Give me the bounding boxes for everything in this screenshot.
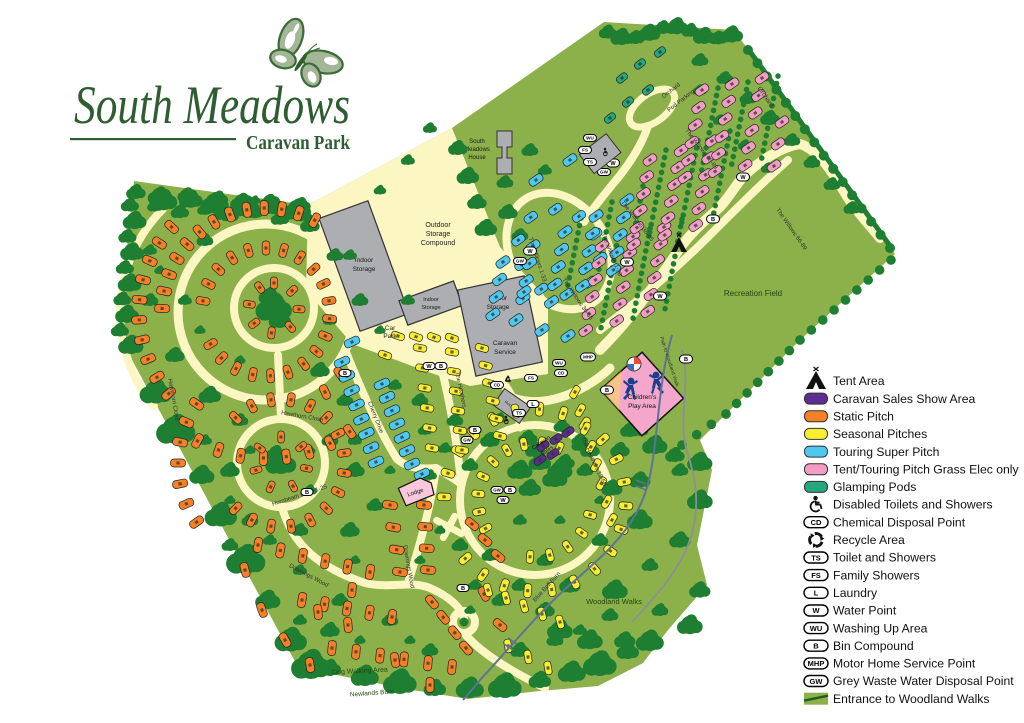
svg-text:B: B bbox=[439, 364, 443, 370]
svg-text:Tent/Touring Pitch Grass Elec: Tent/Touring Pitch Grass Elec only bbox=[833, 462, 1020, 476]
svg-text:B: B bbox=[508, 488, 512, 494]
svg-text:Static Pitch: Static Pitch bbox=[833, 410, 894, 424]
svg-text:W: W bbox=[610, 161, 616, 167]
svg-text:Toilet and Showers: Toilet and Showers bbox=[833, 551, 936, 565]
svg-text:Laundry: Laundry bbox=[833, 586, 878, 600]
svg-text:Children's: Children's bbox=[628, 394, 657, 401]
svg-text:W: W bbox=[527, 249, 533, 255]
svg-text:B: B bbox=[605, 388, 609, 394]
svg-text:Tent Area: Tent Area bbox=[833, 374, 885, 388]
svg-text:B: B bbox=[684, 357, 688, 363]
svg-text:Family Showers: Family Showers bbox=[833, 568, 920, 582]
svg-text:Meadows: Meadows bbox=[464, 147, 490, 153]
svg-text:FS: FS bbox=[528, 376, 534, 381]
svg-text:Recycle Area: Recycle Area bbox=[833, 533, 905, 547]
svg-text:CD: CD bbox=[494, 383, 501, 388]
svg-text:Compound: Compound bbox=[421, 240, 455, 247]
svg-text:Glamping Pods: Glamping Pods bbox=[833, 480, 916, 494]
svg-text:GW: GW bbox=[516, 259, 525, 264]
svg-text:MHP: MHP bbox=[808, 659, 825, 668]
svg-text:WU: WU bbox=[555, 361, 563, 366]
svg-text:CD: CD bbox=[811, 518, 822, 527]
svg-text:Washing Up Area: Washing Up Area bbox=[833, 621, 928, 635]
svg-text:Storage: Storage bbox=[421, 305, 440, 311]
svg-text:B: B bbox=[343, 371, 347, 377]
svg-text:Storage: Storage bbox=[353, 266, 376, 273]
svg-text:B: B bbox=[473, 428, 477, 434]
svg-text:GW: GW bbox=[810, 677, 824, 686]
svg-text:B: B bbox=[305, 490, 309, 496]
svg-text:Play Area: Play Area bbox=[628, 403, 656, 410]
svg-text:TS: TS bbox=[516, 411, 522, 416]
svg-text:W: W bbox=[500, 498, 506, 504]
svg-text:Chemical Disposal Point: Chemical Disposal Point bbox=[833, 515, 966, 529]
svg-text:Caravan Sales Show Area: Caravan Sales Show Area bbox=[833, 392, 975, 406]
svg-text:L: L bbox=[531, 402, 535, 408]
svg-text:W: W bbox=[657, 294, 663, 300]
svg-text:B: B bbox=[813, 642, 819, 651]
svg-text:W: W bbox=[624, 260, 630, 266]
svg-text:WU: WU bbox=[586, 136, 594, 141]
svg-text:B: B bbox=[461, 586, 465, 592]
svg-text:Entrance to Woodland Walks: Entrance to Woodland Walks bbox=[833, 692, 990, 706]
svg-text:FS: FS bbox=[582, 148, 588, 153]
svg-text:W: W bbox=[426, 364, 432, 370]
svg-text:Motor Home Service Point: Motor Home Service Point bbox=[833, 657, 976, 671]
svg-text:House: House bbox=[468, 155, 486, 161]
svg-text:Park: Park bbox=[383, 333, 397, 340]
svg-text:Woodland Walks: Woodland Walks bbox=[586, 597, 642, 606]
svg-text:Water Point: Water Point bbox=[833, 604, 897, 618]
svg-text:MHP: MHP bbox=[583, 355, 593, 360]
svg-text:Indoor: Indoor bbox=[423, 297, 439, 303]
svg-text:L: L bbox=[814, 589, 819, 598]
svg-text:Recreation Field: Recreation Field bbox=[724, 289, 782, 298]
svg-text:WU: WU bbox=[810, 624, 823, 633]
svg-text:Caravan Park: Caravan Park bbox=[246, 132, 351, 154]
svg-text:B: B bbox=[711, 217, 715, 223]
svg-text:Grey Waste Water Disposal Poin: Grey Waste Water Disposal Point bbox=[833, 674, 1014, 688]
svg-text:W: W bbox=[740, 175, 746, 181]
svg-text:W: W bbox=[812, 606, 820, 615]
svg-text:Seasonal Pitches: Seasonal Pitches bbox=[833, 427, 927, 441]
svg-text:Car: Car bbox=[385, 325, 396, 332]
svg-text:Touring Super Pitch: Touring Super Pitch bbox=[833, 445, 939, 459]
svg-text:TS: TS bbox=[587, 160, 593, 165]
svg-text:GW: GW bbox=[493, 488, 501, 493]
svg-text:Disabled Toilets and Showers: Disabled Toilets and Showers bbox=[833, 498, 993, 512]
svg-text:FS: FS bbox=[811, 571, 821, 580]
svg-text:GW: GW bbox=[463, 438, 471, 443]
svg-text:Outdoor: Outdoor bbox=[425, 222, 451, 229]
svg-text:Service: Service bbox=[494, 349, 516, 356]
svg-text:Caravan: Caravan bbox=[493, 340, 518, 347]
svg-text:Indoor: Indoor bbox=[355, 257, 374, 264]
svg-text:South: South bbox=[469, 139, 485, 145]
svg-text:Storage: Storage bbox=[426, 231, 451, 238]
svg-text:Newlands Burn: Newlands Burn bbox=[350, 688, 395, 698]
svg-text:CD: CD bbox=[558, 371, 565, 376]
svg-text:GW: GW bbox=[600, 170, 609, 175]
svg-text:TS: TS bbox=[811, 553, 821, 562]
svg-text:Bin Compound: Bin Compound bbox=[833, 639, 914, 653]
